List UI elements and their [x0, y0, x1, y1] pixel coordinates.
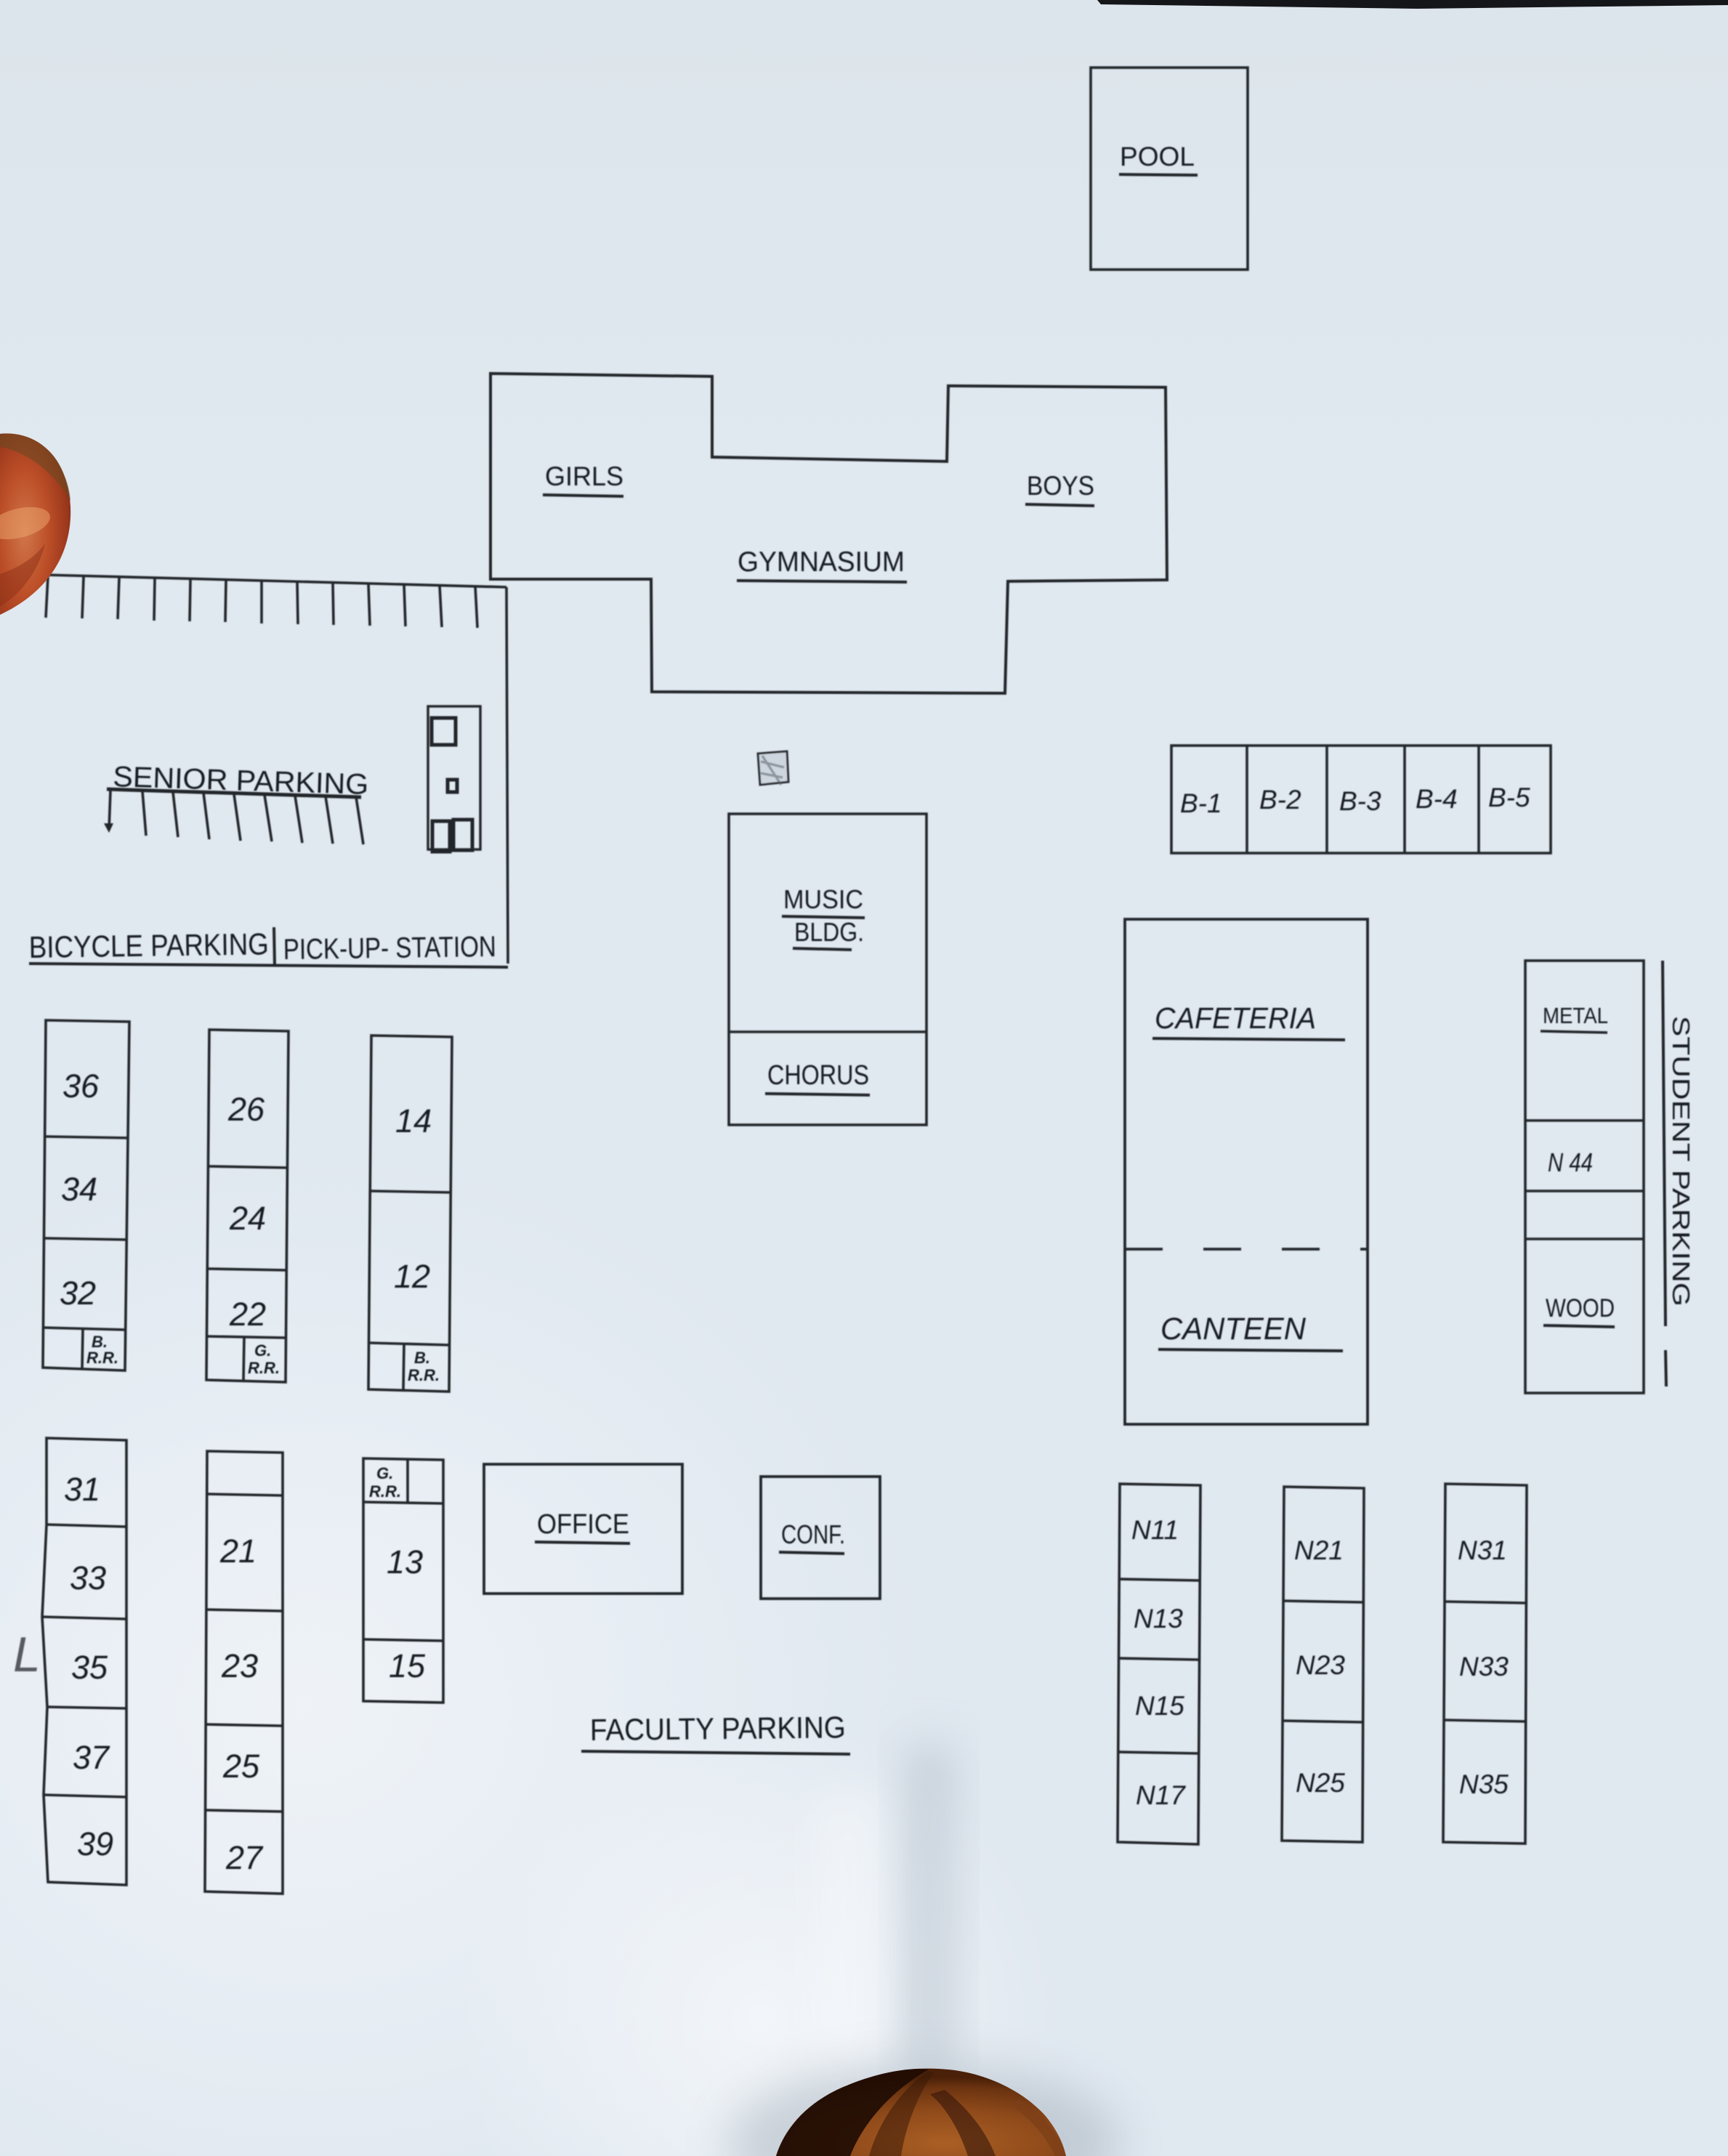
- svg-text:23: 23: [221, 1647, 258, 1684]
- svg-text:CANTEEN: CANTEEN: [1160, 1312, 1307, 1347]
- svg-text:BOYS: BOYS: [1027, 471, 1094, 501]
- svg-text:POOL: POOL: [1120, 142, 1195, 171]
- svg-text:R.R.: R.R.: [408, 1366, 440, 1384]
- svg-text:N13: N13: [1134, 1604, 1183, 1634]
- svg-text:N23: N23: [1296, 1650, 1345, 1680]
- svg-text:N17: N17: [1136, 1780, 1186, 1810]
- svg-text:FACULTY PARKING: FACULTY PARKING: [590, 1710, 846, 1747]
- svg-text:N15: N15: [1135, 1691, 1184, 1721]
- svg-text:MUSIC: MUSIC: [783, 884, 863, 914]
- svg-text:R.R.: R.R.: [369, 1482, 401, 1501]
- svg-text:33: 33: [70, 1559, 106, 1596]
- svg-text:34: 34: [61, 1171, 97, 1208]
- svg-text:13: 13: [387, 1543, 423, 1580]
- svg-text:35: 35: [71, 1649, 108, 1686]
- svg-text:GIRLS: GIRLS: [545, 461, 623, 491]
- svg-text:N11: N11: [1131, 1515, 1179, 1545]
- svg-text:32: 32: [60, 1275, 96, 1312]
- svg-text:R.R.: R.R.: [248, 1359, 280, 1377]
- svg-text:12: 12: [394, 1258, 430, 1295]
- svg-text:METAL: METAL: [1543, 1003, 1608, 1028]
- svg-text:GYMNASIUM: GYMNASIUM: [738, 546, 905, 578]
- svg-text:15: 15: [389, 1647, 426, 1684]
- svg-text:STUDENT PARKING: STUDENT PARKING: [1668, 1016, 1695, 1307]
- svg-text:N 44: N 44: [1548, 1147, 1593, 1177]
- svg-text:G.: G.: [376, 1464, 393, 1482]
- svg-text:N35: N35: [1459, 1769, 1509, 1799]
- svg-text:CONF.: CONF.: [781, 1519, 845, 1549]
- svg-text:26: 26: [227, 1091, 265, 1128]
- svg-text:G.: G.: [254, 1341, 271, 1360]
- svg-text:N21: N21: [1294, 1535, 1344, 1565]
- svg-text:R.R.: R.R.: [86, 1349, 118, 1367]
- svg-text:CAFETERIA: CAFETERIA: [1155, 1001, 1316, 1035]
- svg-text:L: L: [13, 1627, 41, 1682]
- svg-text:PICK-UP- STATION: PICK-UP- STATION: [283, 931, 497, 966]
- svg-text:31: 31: [64, 1471, 100, 1508]
- svg-text:B-4: B-4: [1416, 784, 1458, 814]
- svg-text:N31: N31: [1458, 1535, 1507, 1565]
- svg-text:B-3: B-3: [1339, 786, 1381, 816]
- svg-text:BICYCLE PARKING: BICYCLE PARKING: [28, 926, 269, 964]
- svg-text:37: 37: [73, 1739, 110, 1776]
- svg-text:B-5: B-5: [1488, 783, 1530, 812]
- svg-text:BLDG.: BLDG.: [794, 917, 864, 947]
- svg-text:22: 22: [229, 1296, 266, 1333]
- svg-text:25: 25: [222, 1748, 260, 1785]
- svg-text:B-1: B-1: [1180, 788, 1222, 818]
- svg-text:21: 21: [219, 1533, 257, 1570]
- svg-text:N25: N25: [1296, 1768, 1345, 1798]
- svg-text:36: 36: [62, 1067, 100, 1105]
- svg-text:14: 14: [395, 1102, 432, 1139]
- svg-text:24: 24: [229, 1200, 266, 1237]
- svg-text:B.: B.: [414, 1349, 430, 1367]
- svg-text:B-2: B-2: [1259, 785, 1301, 815]
- svg-text:OFFICE: OFFICE: [537, 1509, 629, 1540]
- svg-text:N33: N33: [1459, 1652, 1509, 1681]
- svg-text:CHORUS: CHORUS: [767, 1060, 869, 1091]
- svg-text:39: 39: [77, 1825, 113, 1862]
- svg-text:27: 27: [225, 1839, 264, 1876]
- svg-text:WOOD: WOOD: [1546, 1294, 1615, 1323]
